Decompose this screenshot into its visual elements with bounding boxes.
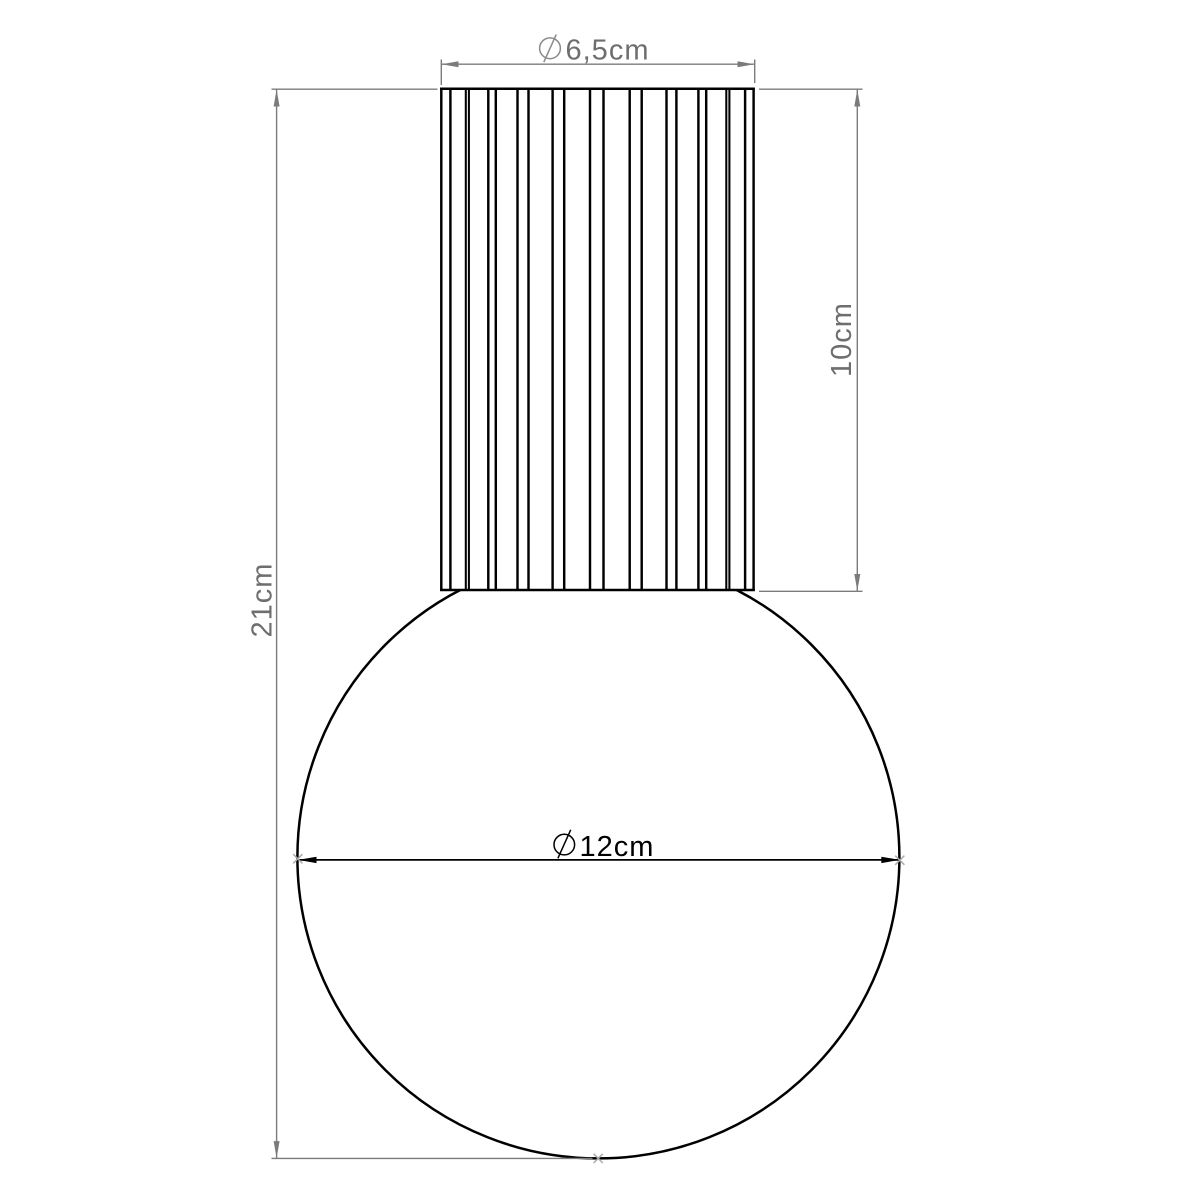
svg-text:12cm: 12cm — [580, 831, 655, 863]
svg-text:21cm: 21cm — [247, 563, 279, 638]
svg-text:10cm: 10cm — [826, 302, 858, 377]
svg-text:6,5cm: 6,5cm — [566, 34, 650, 66]
